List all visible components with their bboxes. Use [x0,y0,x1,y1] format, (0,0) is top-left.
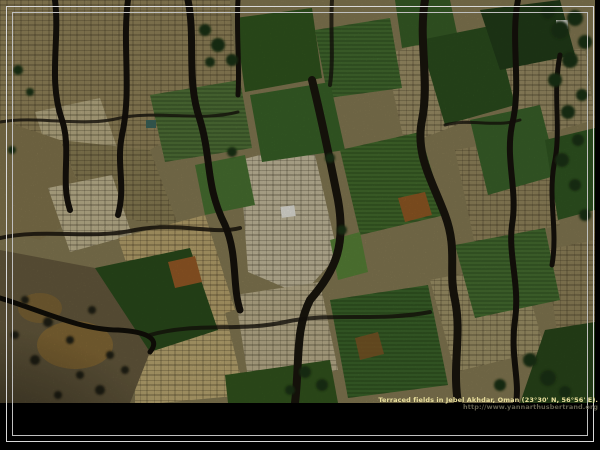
terraced-fields-illustration [0,0,595,403]
caption-url: http://www.yannarthusbertrand.org [378,404,598,411]
aerial-photo [0,0,595,403]
wallpaper-canvas: Terraced fields in Jebel Akhdar, Oman (2… [0,0,600,450]
photo-caption: Terraced fields in Jebel Akhdar, Oman (2… [378,397,598,411]
